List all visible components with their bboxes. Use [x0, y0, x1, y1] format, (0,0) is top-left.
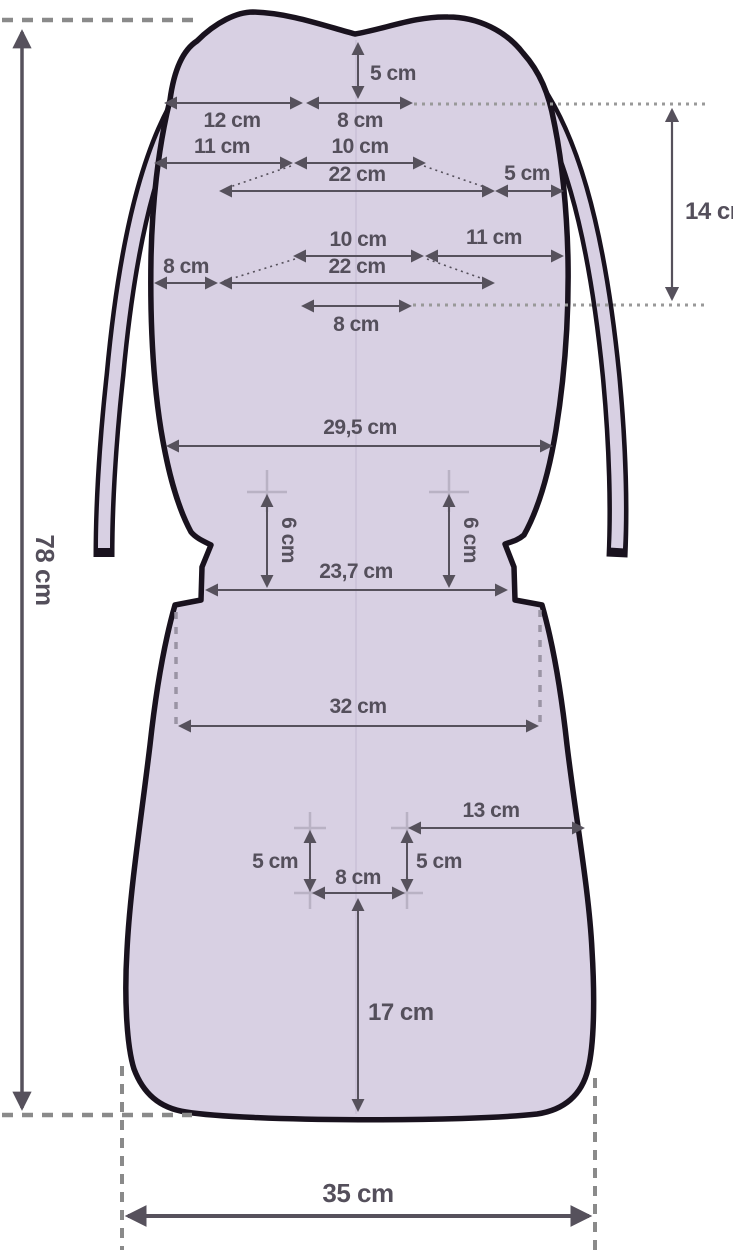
label-backrest-width: 29,5 cm — [323, 416, 397, 439]
label-seat-bottom-17: 17 cm — [368, 999, 434, 1026]
label-seat-top-width: 32 cm — [329, 695, 386, 718]
label-waist-left-6: 6 cm — [277, 517, 300, 563]
label-slot-right-5: 5 cm — [416, 850, 462, 873]
label-top-left-12: 12 cm — [203, 109, 260, 132]
label-lower-11: 11 cm — [466, 226, 522, 249]
label-center-offset-8: 8 cm — [333, 313, 379, 336]
label-slot-gap-14: 14 cm — [685, 198, 733, 225]
label-total-height: 78 cm — [30, 534, 60, 605]
label-upper-22: 22 cm — [328, 163, 385, 186]
label-waist-width: 23,7 cm — [319, 560, 393, 583]
seat-liner-pattern-svg: 78 cm 5 cm 12 cm 8 cm 11 cm 10 cm 22 cm … — [0, 0, 733, 1260]
label-lower-10: 10 cm — [329, 228, 386, 251]
label-slot-left-5: 5 cm — [252, 850, 298, 873]
label-upper-11: 11 cm — [194, 135, 250, 158]
label-seat-right-13: 13 cm — [462, 799, 519, 822]
label-bottom-width: 35 cm — [322, 1178, 393, 1208]
label-lower-22: 22 cm — [328, 255, 385, 278]
label-waist-right-6: 6 cm — [459, 517, 482, 563]
label-top-notch: 5 cm — [370, 62, 416, 85]
label-upper-5: 5 cm — [504, 162, 550, 185]
label-top-center-8: 8 cm — [337, 109, 383, 132]
label-upper-10: 10 cm — [331, 135, 388, 158]
label-lower-8: 8 cm — [163, 255, 209, 278]
pattern-diagram-page: 78 cm 5 cm 12 cm 8 cm 11 cm 10 cm 22 cm … — [0, 0, 733, 1260]
label-slot-width-8: 8 cm — [335, 866, 381, 889]
